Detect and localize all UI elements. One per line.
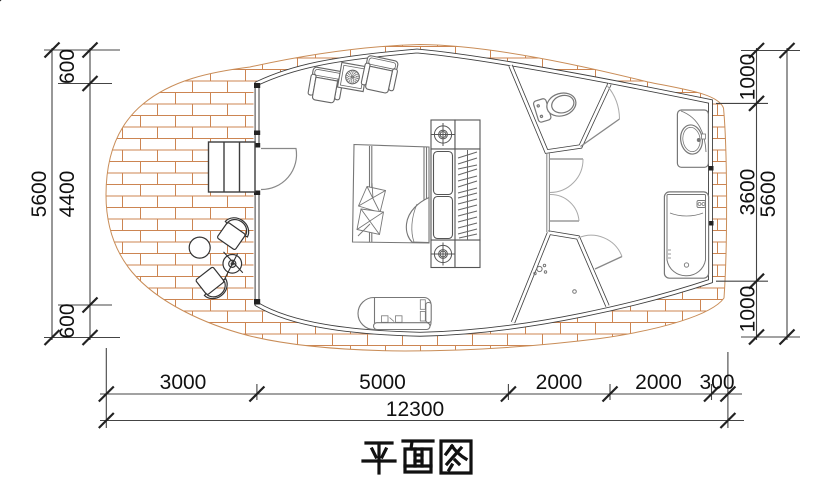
svg-text:600: 600 (56, 303, 79, 338)
svg-text:5600: 5600 (28, 171, 51, 218)
svg-text:600: 600 (56, 49, 79, 84)
svg-text:300: 300 (699, 371, 734, 394)
svg-text:3000: 3000 (160, 371, 207, 394)
svg-text:5000: 5000 (359, 371, 406, 394)
svg-text:2000: 2000 (536, 371, 583, 394)
svg-text:2000: 2000 (635, 371, 682, 394)
svg-text:4400: 4400 (56, 171, 79, 218)
svg-text:1000: 1000 (737, 286, 760, 333)
svg-text:12300: 12300 (386, 398, 444, 421)
svg-text:1000: 1000 (737, 54, 760, 101)
svg-text:5600: 5600 (757, 171, 780, 218)
